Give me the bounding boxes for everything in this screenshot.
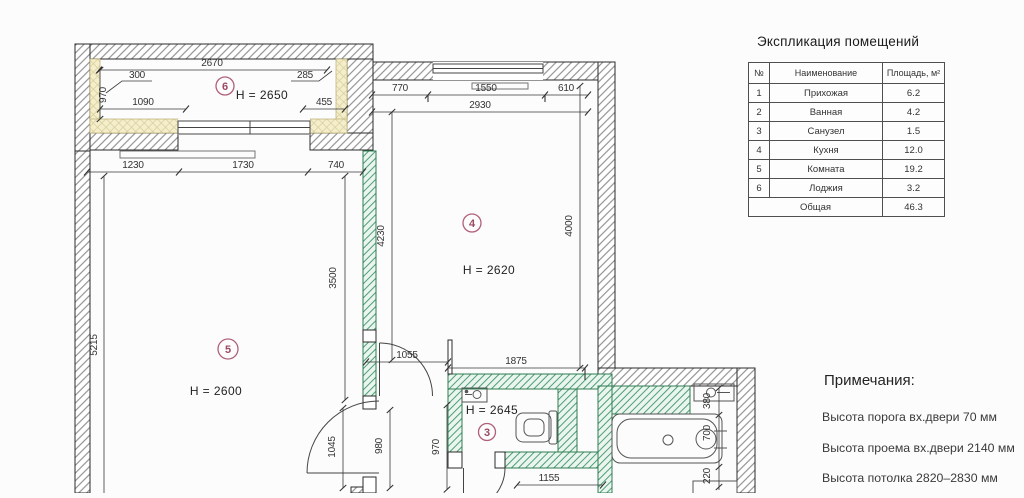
washbasin-tap	[465, 390, 468, 393]
partition-wc-top	[448, 374, 612, 389]
toilet-bowl-inner	[524, 419, 544, 436]
total-area: 46.3	[883, 198, 945, 217]
insulation-corner-left	[90, 119, 178, 133]
bath-washbasin	[694, 384, 734, 401]
dim-1230: 1230	[122, 160, 144, 171]
header-name: Наименование	[770, 63, 883, 84]
row-num: 1	[749, 84, 770, 103]
row-area: 4.2	[883, 103, 945, 122]
header-num: №	[749, 63, 770, 84]
wall-bath-top	[598, 368, 755, 386]
table-row: 2 Ванная 4.2	[749, 103, 945, 122]
room-height-wc: H = 2645	[466, 403, 518, 417]
header-area: Площадь, м²	[883, 63, 945, 84]
dim-1875: 1875	[505, 356, 527, 367]
wall-loggia-top	[75, 44, 373, 59]
dim-2670: 2670	[201, 58, 223, 69]
row-name: Комната	[770, 160, 883, 179]
note-ceiling-height: Высота потолка 2820–2830 мм	[822, 471, 998, 485]
bathtub-drain	[663, 435, 673, 445]
dim-300: 300	[129, 70, 146, 81]
room-height-living: H = 2600	[190, 384, 242, 398]
row-area: 1.5	[883, 122, 945, 141]
floor-plan: 2670 300 285 970 1090 455 1230 1730 740 …	[0, 0, 765, 498]
jamb-room5-door-bottom	[363, 477, 376, 493]
table-row: 4 Кухня 12.0	[749, 141, 945, 160]
wall-kitchen-right	[598, 62, 615, 368]
row-num: 6	[749, 179, 770, 198]
room-number-wc: 3	[484, 427, 490, 439]
partition-bath-topband	[612, 386, 690, 414]
explication-table: № Наименование Площадь, м² 1 Прихожая 6.…	[748, 62, 945, 217]
row-num: 4	[749, 141, 770, 160]
room-number-loggia: 6	[222, 81, 228, 93]
note-threshold-height: Высота порога вх.двери 70 мм	[822, 410, 997, 424]
dim-1045: 1045	[327, 436, 338, 458]
table-row: 1 Прихожая 6.2	[749, 84, 945, 103]
row-area: 6.2	[883, 84, 945, 103]
partition-wc-left	[448, 389, 462, 453]
wc-door-arc	[463, 468, 505, 493]
table-total-row: Общая 46.3	[749, 198, 945, 217]
insulation-corner-right	[310, 119, 347, 133]
row-name: Санузел	[770, 122, 883, 141]
radiator-living	[120, 151, 255, 158]
floor-plan-drawing: 2670 300 285 970 1090 455 1230 1730 740 …	[0, 0, 765, 493]
table-row: 6 Лоджия 3.2	[749, 179, 945, 198]
dim-610: 610	[558, 83, 575, 94]
dim-220: 220	[702, 467, 713, 484]
jamb-kitchen-door	[363, 330, 376, 342]
room-number-kitchen: 4	[469, 218, 476, 230]
wall-left-outer	[75, 151, 90, 493]
dim-455: 455	[316, 97, 333, 108]
dim-770: 770	[392, 83, 409, 94]
dim-1550: 1550	[475, 83, 497, 94]
walls-masonry	[75, 44, 755, 493]
row-name: Прихожая	[770, 84, 883, 103]
washbasin-bowl	[473, 391, 481, 399]
room-height-loggia: H = 2650	[236, 88, 288, 102]
row-num: 2	[749, 103, 770, 122]
partition-bath-left	[598, 386, 612, 493]
dim-1090: 1090	[132, 97, 154, 108]
row-area: 19.2	[883, 160, 945, 179]
dim-980: 980	[374, 437, 385, 454]
wall-loggia-bottom-left	[90, 133, 178, 150]
jamb-hall-edge	[448, 340, 452, 374]
dim-700: 700	[702, 424, 713, 441]
partition-wc-right	[558, 389, 577, 453]
dim-5215: 5215	[89, 334, 100, 356]
dim-740: 740	[328, 160, 345, 171]
wall-loggia-left	[75, 44, 90, 151]
jamb-wc-door-right	[495, 452, 505, 468]
dim-380: 380	[702, 392, 713, 409]
dim-4230: 4230	[376, 225, 387, 247]
wall-bath-right	[737, 368, 755, 493]
room-height-kitchen: H = 2620	[463, 263, 515, 277]
toilet	[516, 411, 557, 444]
total-label: Общая	[749, 198, 883, 217]
table-row: 5 Комната 19.2	[749, 160, 945, 179]
jamb-wc-door-left	[448, 452, 462, 468]
dim-1155: 1155	[539, 473, 560, 484]
row-num: 5	[749, 160, 770, 179]
dim-2930: 2930	[469, 100, 491, 111]
row-num: 3	[749, 122, 770, 141]
row-name: Кухня	[770, 141, 883, 160]
dim-970-loggia: 970	[98, 86, 109, 103]
notes-title: Примечания:	[824, 372, 915, 389]
dim-970-hall: 970	[431, 438, 442, 455]
row-area: 3.2	[883, 179, 945, 198]
wall-loggia-bottom-right	[310, 133, 373, 150]
room-number-living: 5	[225, 344, 231, 356]
doors	[307, 343, 505, 493]
note-door-opening-height: Высота проема вх.двери 2140 мм	[822, 441, 1015, 455]
partition-hall-kitchen-mid	[363, 342, 376, 396]
partition-wc-bottom	[505, 452, 612, 468]
dim-1055-door: 1055	[396, 350, 418, 361]
dim-4000: 4000	[564, 215, 575, 237]
row-name: Ванная	[770, 103, 883, 122]
wc-washbasin	[462, 388, 487, 402]
table-header-row: № Наименование Площадь, м²	[749, 63, 945, 84]
partition-hall-kitchen-upper	[363, 151, 376, 330]
toilet-bowl-outer	[516, 413, 551, 442]
bath-cabinet-cut	[693, 481, 737, 493]
explication-title: Экспликация помещений	[757, 34, 919, 49]
dim-1730: 1730	[232, 160, 254, 171]
wall-loggia-right	[347, 59, 373, 133]
dim-3500: 3500	[328, 267, 339, 289]
row-area: 12.0	[883, 141, 945, 160]
dim-285: 285	[297, 70, 314, 81]
table-row: 3 Санузел 1.5	[749, 122, 945, 141]
row-name: Лоджия	[770, 179, 883, 198]
